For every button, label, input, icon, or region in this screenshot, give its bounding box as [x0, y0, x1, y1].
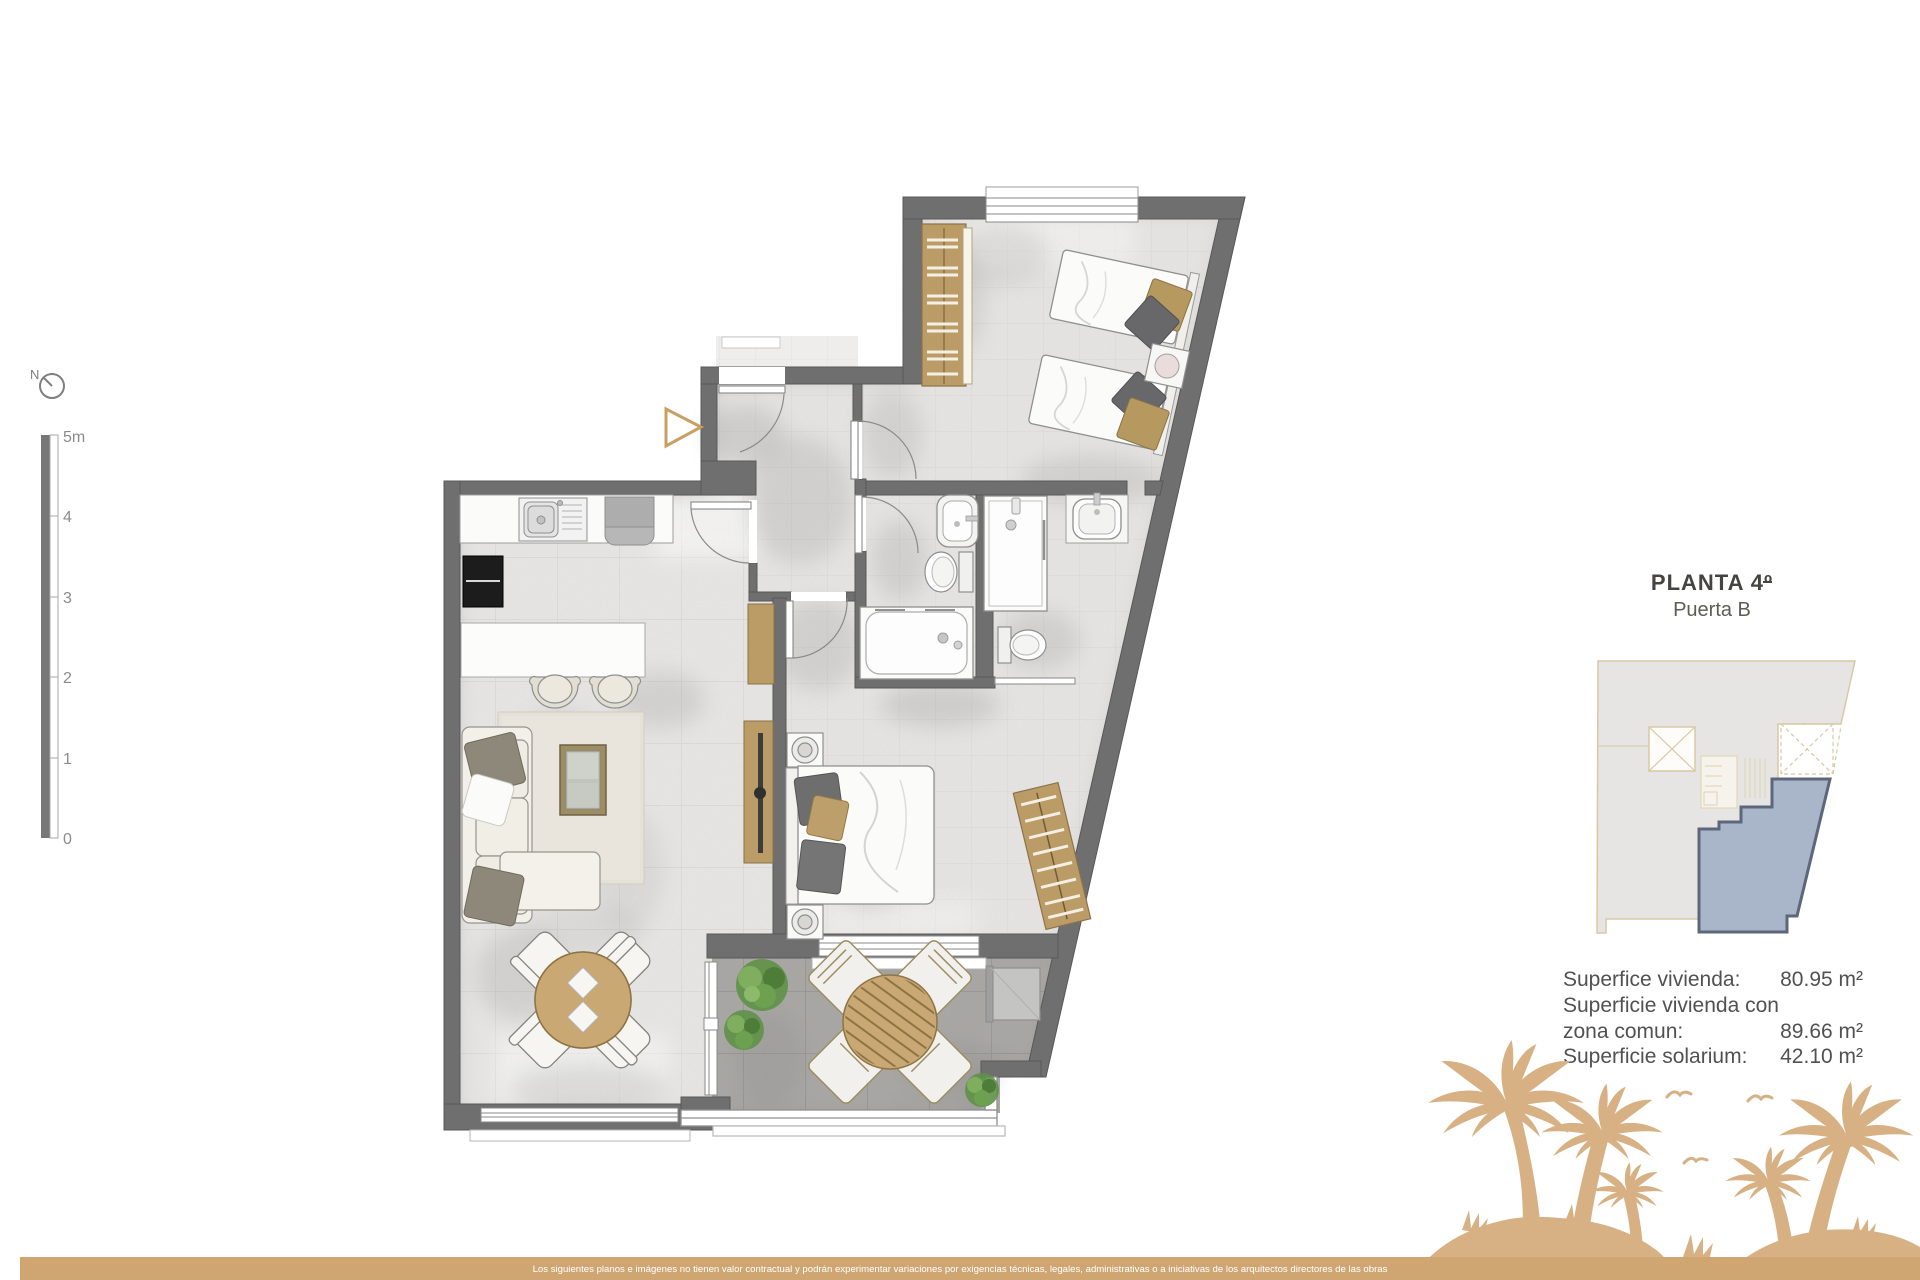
svg-text:Superfice vivienda:: Superfice vivienda:: [1563, 968, 1740, 991]
svg-text:N: N: [30, 367, 39, 382]
svg-text:2: 2: [63, 670, 72, 687]
svg-text:Puerta B: Puerta B: [1673, 599, 1751, 621]
svg-text:PLANTA 4º: PLANTA 4º: [1651, 570, 1773, 595]
svg-text:42.10 m²: 42.10 m²: [1780, 1045, 1863, 1068]
svg-text:zona comun:: zona comun:: [1563, 1020, 1683, 1043]
svg-text:3: 3: [63, 590, 72, 607]
svg-text:1: 1: [63, 751, 72, 768]
svg-text:Superficie vivienda con: Superficie vivienda con: [1563, 994, 1779, 1017]
svg-text:4: 4: [63, 509, 72, 526]
svg-text:0: 0: [63, 831, 72, 848]
svg-text:89.66 m²: 89.66 m²: [1780, 1020, 1863, 1043]
svg-text:5m: 5m: [63, 429, 85, 446]
svg-text:Superficie solarium:: Superficie solarium:: [1563, 1045, 1747, 1068]
svg-text:80.95 m²: 80.95 m²: [1780, 968, 1863, 991]
svg-text:Los siguientes planos e imágen: Los siguientes planos e imágenes no tien…: [533, 1264, 1388, 1275]
